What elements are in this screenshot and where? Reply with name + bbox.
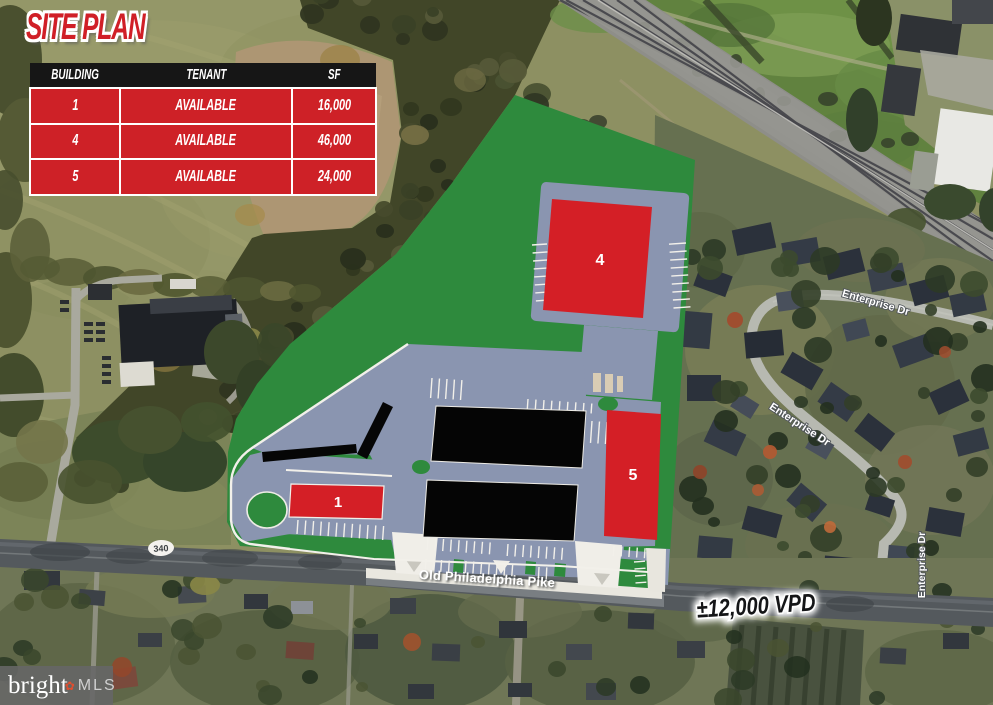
svg-text:Enterprise Dr: Enterprise Dr xyxy=(916,532,928,599)
svg-text:4: 4 xyxy=(596,252,605,269)
svg-text:340: 340 xyxy=(153,543,169,554)
svg-text:1: 1 xyxy=(334,494,342,511)
svg-text:5: 5 xyxy=(629,467,638,484)
